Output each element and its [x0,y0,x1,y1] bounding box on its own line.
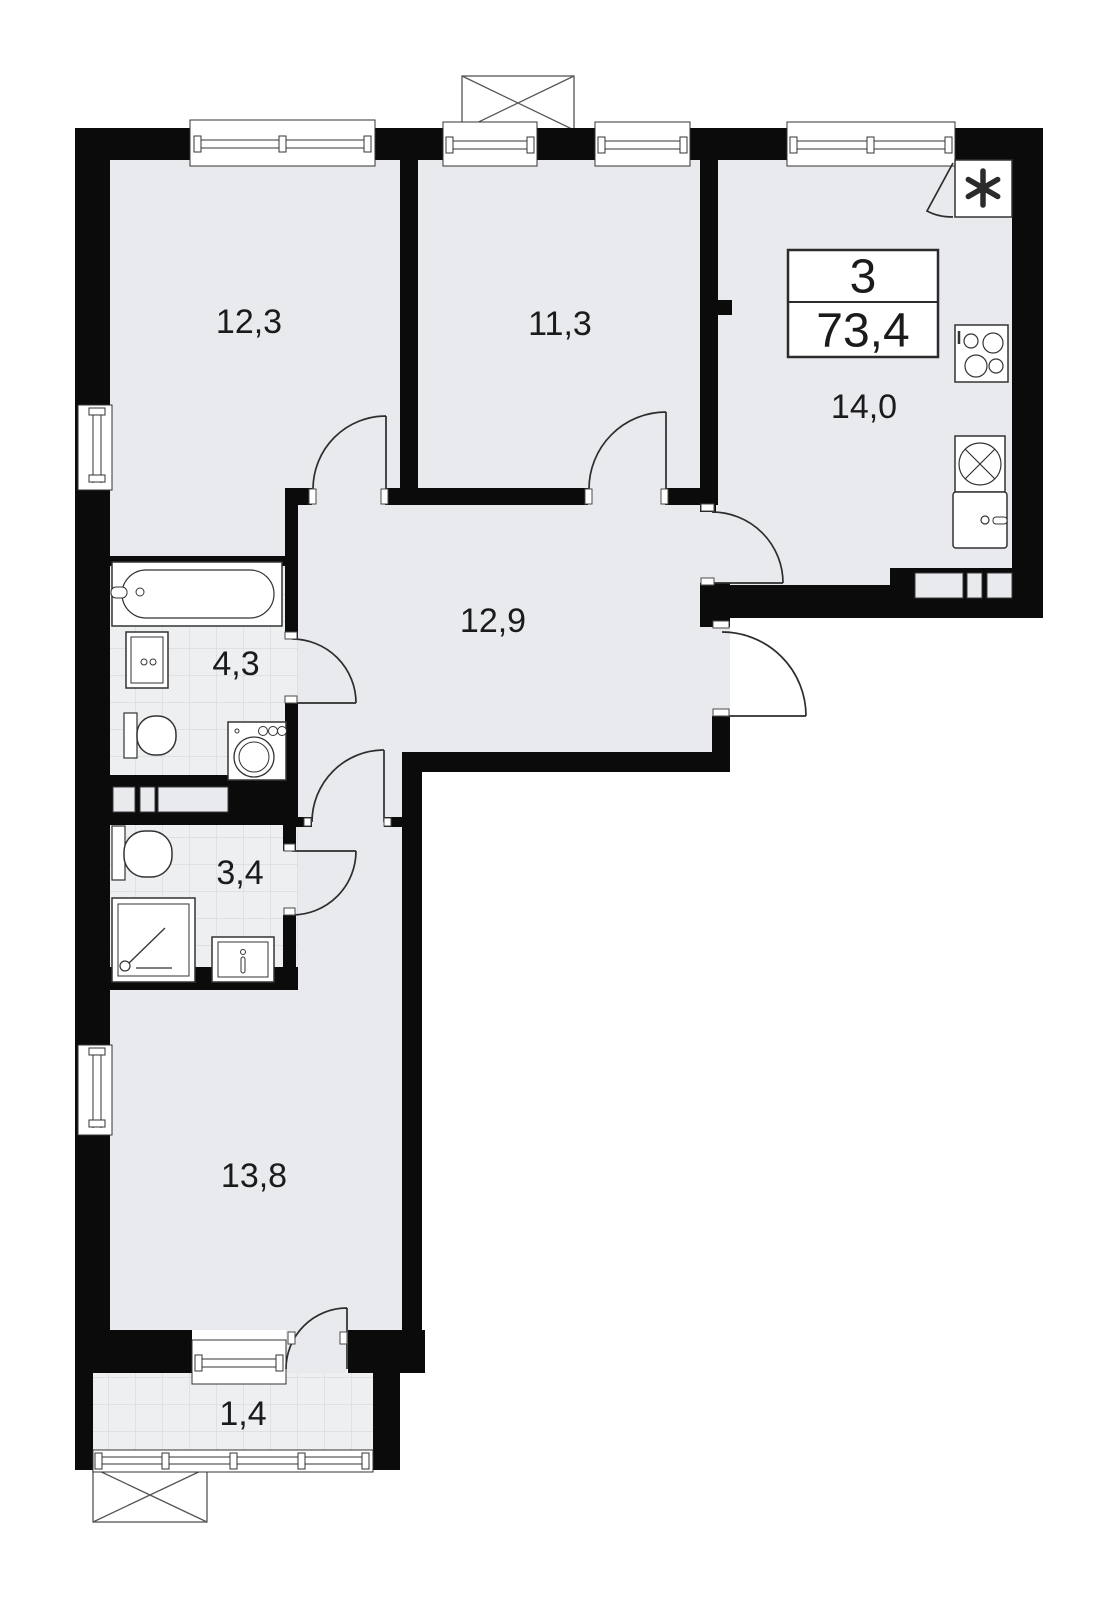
window [192,1340,286,1384]
corridor-pocket-floor [296,753,402,817]
wall-segment [700,160,718,505]
sink-icon [212,937,274,982]
badge-rooms-count: 3 [850,251,877,304]
washing-machine-icon [228,722,287,780]
wall-segment [283,915,296,967]
window [78,1045,112,1135]
balcony-area-label: 1,4 [219,1395,266,1433]
window [443,122,537,166]
room2-area-label: 11,3 [528,305,592,343]
wall-segment [402,752,422,1330]
wall-segment [665,488,718,505]
badge-total-area: 73,4 [816,305,909,358]
wall-segment [285,703,298,775]
wall-segment [385,488,588,505]
window [190,120,375,166]
window [78,405,112,490]
wall-segment [400,160,418,505]
room3-area-label: 13,8 [221,1157,287,1195]
toilet-icon [124,713,176,758]
wall-segment [402,752,730,772]
info-badge: 3 73,4 [788,250,938,358]
floor-plan: 3 73,4 12,3 11,3 14,0 12,9 4,3 3,4 13,8 … [0,0,1108,1600]
wall-segment [373,1373,400,1470]
vent-shaft-icon [140,787,155,812]
entry-door-gap [712,627,730,716]
wall-segment [75,1373,93,1470]
ac-basket-icon [93,1468,207,1522]
wall-segment [75,128,110,1373]
floor-plan-drawing: 3 73,4 12,3 11,3 14,0 12,9 4,3 3,4 13,8 … [0,0,1108,1600]
window [595,122,690,166]
vestibule-floor [296,817,402,990]
vent-shaft-icon [113,787,135,812]
kitchen-area-label: 14,0 [831,388,897,426]
wall-segment [718,300,732,315]
vent-shaft-icon [967,573,982,598]
wall-segment [712,716,730,772]
toilet-area-label: 3,4 [216,854,263,892]
shower-icon [112,898,195,982]
wall-segment [285,566,298,639]
wall-segment [1012,128,1043,618]
fridge-icon [953,492,1007,548]
window [787,122,955,166]
corridor-area-label: 12,9 [460,602,526,640]
wall-segment [110,1330,192,1373]
toilet-icon [112,826,172,880]
kitchen-sink-icon [955,436,1005,492]
bathroom-area-label: 4,3 [212,645,259,683]
stove-icon [955,325,1008,382]
vent-shaft-icon [987,573,1012,598]
wall-segment [348,1330,425,1373]
balcony-glazing [93,1450,373,1472]
room1-area-label: 12,3 [216,303,282,341]
sink-icon [126,632,168,688]
bathtub-icon [111,562,282,626]
wall-segment [700,583,730,627]
wall-segment [285,488,312,505]
room1-floor [110,160,400,556]
vent-shaft-icon [915,573,963,598]
vent-shaft-icon [158,787,228,812]
